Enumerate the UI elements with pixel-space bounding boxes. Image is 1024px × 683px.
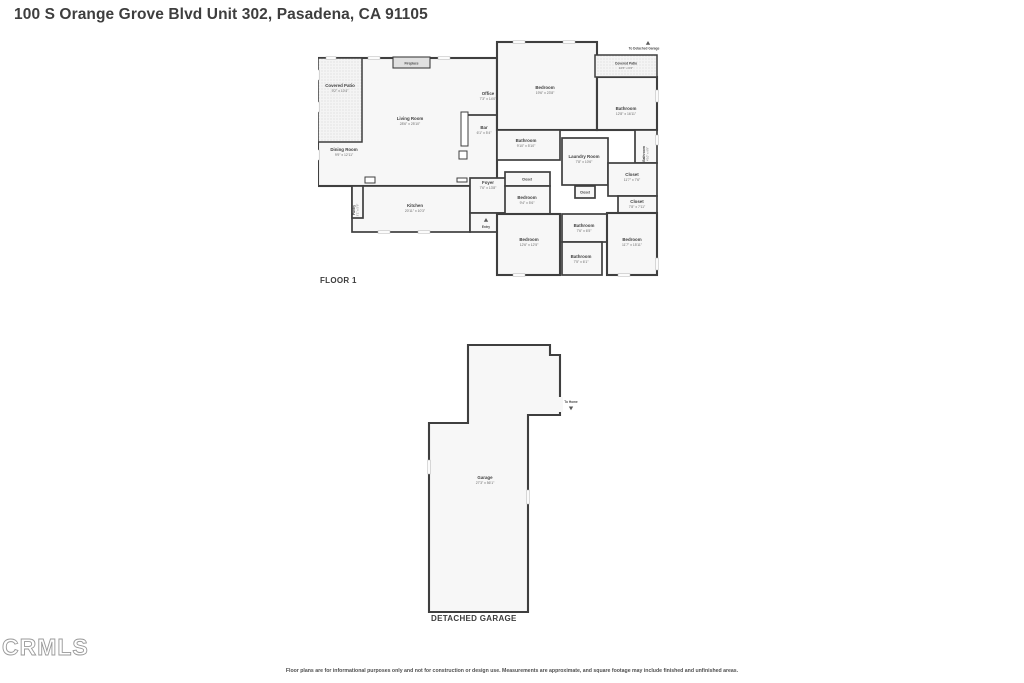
svg-text:7'8" x 10'6": 7'8" x 10'6" bbox=[576, 160, 594, 164]
svg-text:19'6" x 23'8": 19'6" x 23'8" bbox=[536, 91, 555, 95]
label-to-garage: To Detached Garage bbox=[629, 47, 660, 51]
label-bedroom-bl: Bedroom bbox=[519, 237, 538, 242]
label-bedroom-br: Bedroom bbox=[622, 237, 641, 242]
label-bedroom-master: Bedroom bbox=[535, 85, 554, 90]
label-bathroom-master: Bathroom bbox=[616, 106, 637, 111]
garage-plan: Garage 27'3" x 56'1" To Home bbox=[425, 340, 615, 615]
label-to-home: To Home bbox=[564, 400, 578, 404]
label-bedroom-small: Bedroom bbox=[517, 195, 536, 200]
label-garage: Garage bbox=[477, 475, 493, 480]
label-closet-2: Closet bbox=[630, 199, 644, 204]
to-home-door-gap bbox=[557, 397, 563, 412]
svg-text:7'3" x 14'0": 7'3" x 14'0" bbox=[480, 97, 498, 101]
bar-fixture bbox=[459, 151, 467, 159]
disclaimer-text: Floor plans are for informational purpos… bbox=[0, 668, 1024, 674]
label-bathroom-side: Bathroom 4'10" x 6'9" bbox=[642, 146, 650, 162]
label-office: Office bbox=[482, 91, 495, 96]
svg-text:9'4" x 5'6": 9'4" x 5'6" bbox=[520, 201, 536, 205]
label-closet-3: Closet bbox=[580, 191, 591, 195]
label-fireplace: Fireplace bbox=[405, 62, 419, 66]
to-home-arrow-icon bbox=[569, 407, 573, 411]
label-bar: Bar bbox=[480, 125, 488, 130]
svg-text:12'6" x 12'5": 12'6" x 12'5" bbox=[520, 243, 539, 247]
crmls-watermark: CRMLS bbox=[2, 634, 89, 661]
svg-text:9'9" x 12'11": 9'9" x 12'11" bbox=[335, 153, 354, 157]
label-kitchen: Kitchen bbox=[407, 203, 423, 208]
svg-text:7'6" x 6'5": 7'6" x 6'5" bbox=[577, 229, 593, 233]
svg-text:28'6" x 25'10": 28'6" x 25'10" bbox=[400, 122, 421, 126]
floor1-title: FLOOR 1 bbox=[320, 276, 357, 285]
svg-text:11'7" x 7'6": 11'7" x 7'6" bbox=[624, 178, 641, 182]
svg-text:7'6" x 13'8": 7'6" x 13'8" bbox=[480, 186, 498, 190]
svg-text:4'10" x 6'9": 4'10" x 6'9" bbox=[646, 147, 650, 161]
kitchen-counter bbox=[365, 177, 375, 183]
svg-text:12'8" x 16'11": 12'8" x 16'11" bbox=[616, 112, 637, 116]
label-laundry: Laundry Room bbox=[569, 154, 600, 159]
label-covered-patio-left: Covered Patio bbox=[325, 83, 355, 88]
room-covered-patio-left bbox=[318, 58, 362, 142]
floor1-plan: Covered Patio 9'2" x 10'4" Dining Room 9… bbox=[318, 40, 660, 277]
label-entry: Entry bbox=[482, 225, 490, 229]
floor-plan-page: 100 S Orange Grove Blvd Unit 302, Pasade… bbox=[0, 0, 1024, 683]
label-pantry: Pantry 3'1" x 5'6" bbox=[352, 204, 360, 217]
label-dining: Dining Room bbox=[330, 147, 357, 152]
room-garage bbox=[429, 345, 560, 612]
label-bathroom-bottom: Bathroom bbox=[571, 254, 592, 259]
svg-text:6'1" x 5'4": 6'1" x 5'4" bbox=[477, 131, 493, 135]
to-garage-arrow-icon bbox=[646, 41, 650, 45]
svg-text:27'3" x 56'1": 27'3" x 56'1" bbox=[476, 481, 495, 485]
page-title: 100 S Orange Grove Blvd Unit 302, Pasade… bbox=[14, 6, 428, 24]
label-living: Living Room bbox=[397, 116, 424, 121]
garage-title: DETACHED GARAGE bbox=[431, 614, 517, 623]
label-foyer: Foyer bbox=[482, 180, 494, 185]
kitchen-island bbox=[457, 178, 467, 182]
svg-text:20'11" x 10'3": 20'11" x 10'3" bbox=[405, 209, 426, 213]
label-closet-master: Closet bbox=[625, 172, 639, 177]
svg-text:7'5" x 6'1": 7'5" x 6'1" bbox=[574, 260, 590, 264]
label-bathroom-2: Bathroom bbox=[516, 138, 537, 143]
svg-text:3'1" x 5'6": 3'1" x 5'6" bbox=[356, 204, 360, 217]
bar-counter bbox=[461, 112, 468, 146]
room-bathroom-master bbox=[597, 77, 657, 130]
floor1-rooms bbox=[318, 42, 657, 275]
svg-text:11'7" x 15'11": 11'7" x 15'11" bbox=[622, 243, 643, 247]
svg-text:9'10" x 5'10": 9'10" x 5'10" bbox=[517, 144, 536, 148]
svg-text:7'8" x 7'11": 7'8" x 7'11" bbox=[629, 205, 646, 209]
svg-text:9'2" x 10'4": 9'2" x 10'4" bbox=[332, 89, 350, 93]
label-bathroom-mid: Bathroom bbox=[574, 223, 595, 228]
svg-text:10'6" x 6'2": 10'6" x 6'2" bbox=[619, 66, 633, 70]
label-closet-4: Closet bbox=[522, 178, 533, 182]
